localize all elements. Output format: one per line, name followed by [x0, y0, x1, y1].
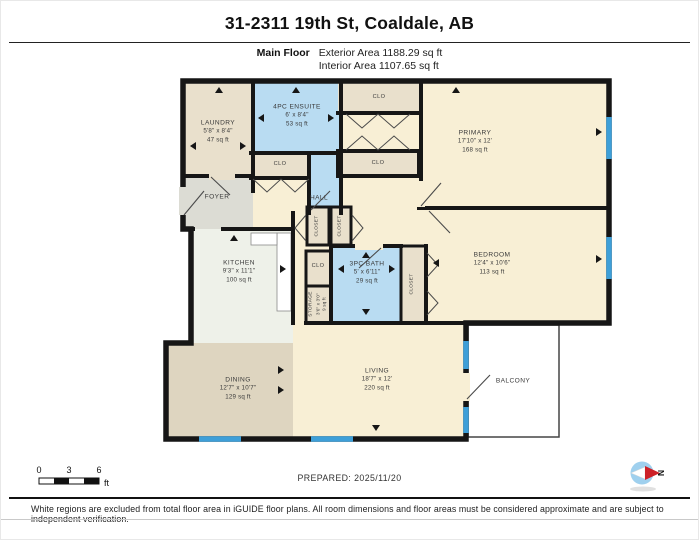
room-label-closet-bedroom: CLOSET	[410, 274, 417, 295]
bottom-divider	[1, 519, 698, 520]
room-label-kitchen: KITCHEN 9'3" x 11'1" 100 sq ft	[223, 259, 255, 286]
room-label-clo-mid-right: CLO	[372, 160, 385, 168]
prepared-date: PREPARED: 2025/11/20	[1, 473, 698, 483]
room-label-bedroom: BEDROOM 12'4" x 10'6" 113 sq ft	[474, 251, 511, 278]
room-label-primary: PRIMARY 17'10" x 12' 168 sq ft	[458, 129, 492, 156]
room-label-closet-hall-1: CLOSET	[315, 216, 322, 237]
room-label-bath: 3PC BATH 5' x 6'11" 29 sq ft	[350, 260, 385, 287]
room-label-closet-hall-2: CLOSET	[338, 216, 345, 237]
footer-divider	[9, 497, 690, 499]
room-label-laundry: LAUNDRY 5'8" x 8'4" 47 sq ft	[201, 119, 235, 146]
floorplan-page: 31-2311 19th St, Coaldale, AB Main Floor…	[0, 0, 699, 540]
room-label-clo-bath: CLO	[312, 263, 325, 271]
room-label-foyer: FOYER	[205, 192, 230, 201]
room-label-clo-top: CLO	[373, 94, 386, 102]
room-label-dining: DINING 12'7" x 10'7" 129 sq ft	[220, 376, 257, 403]
disclaimer-text: White regions are excluded from total fl…	[31, 504, 691, 524]
room-label-living: LIVING 18'7" x 12' 220 sq ft	[362, 367, 393, 394]
room-label-clo-mid-left: CLO	[274, 161, 287, 169]
room-label-storage: STORAGE 3'6" x 3'0" 9 sq ft	[308, 291, 327, 316]
room-label-hall: HALL	[310, 193, 328, 202]
room-label-ensuite: 4PC ENSUITE 6' x 8'4" 53 sq ft	[273, 103, 321, 130]
room-label-balcony: BALCONY	[496, 376, 530, 385]
